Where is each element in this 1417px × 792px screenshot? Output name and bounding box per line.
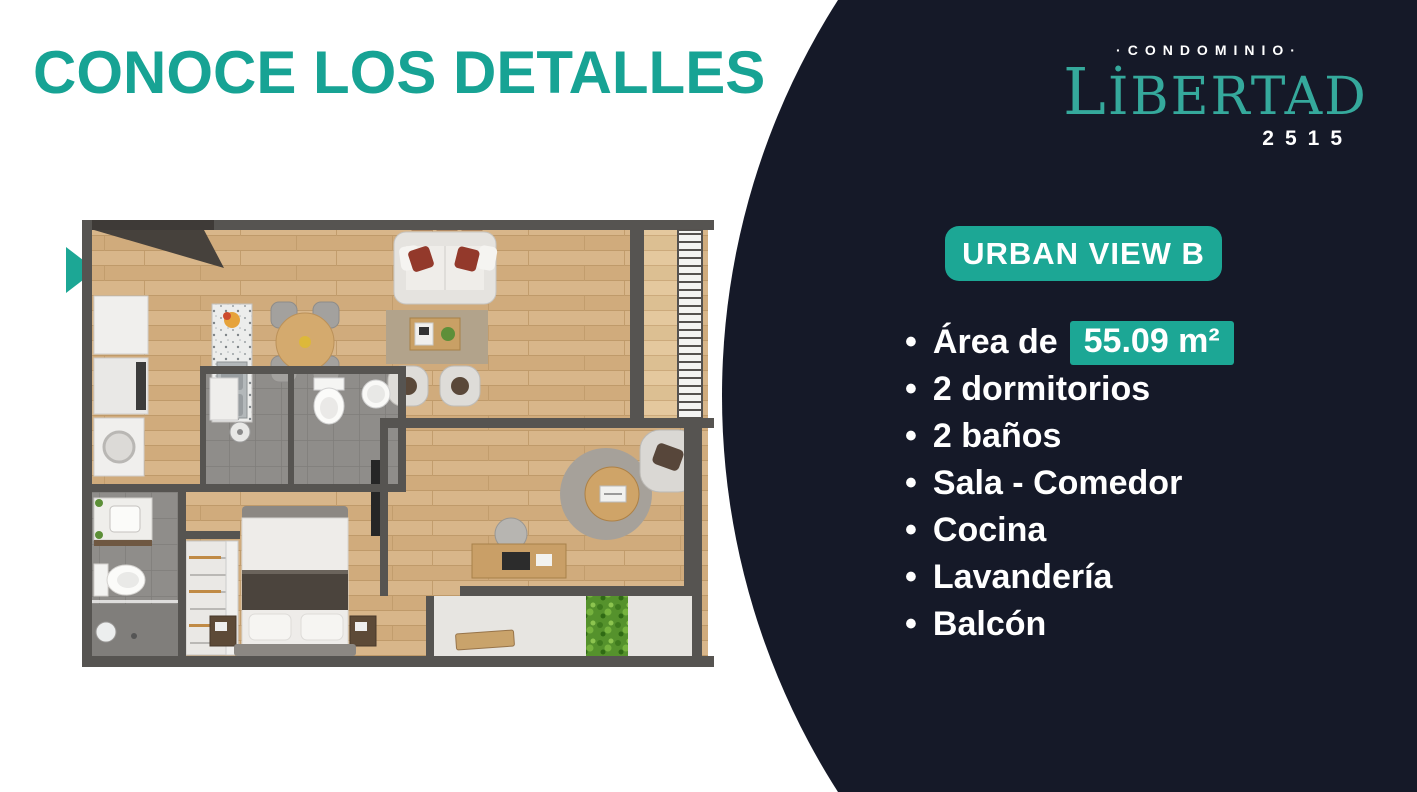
shower-head — [96, 622, 116, 642]
bullet-icon: • — [905, 417, 917, 456]
tv — [371, 460, 380, 536]
bullet-icon: • — [905, 323, 917, 362]
bullet-icon: • — [905, 558, 917, 597]
feature-bathrooms-label: 2 baños — [933, 417, 1061, 456]
bullet-icon: • — [905, 370, 917, 409]
feature-laundry: • Lavandería — [905, 554, 1234, 601]
feature-balcony: • Balcón — [905, 601, 1234, 648]
feature-bedrooms: • 2 dormitorios — [905, 366, 1234, 413]
feature-kitchen: • Cocina — [905, 507, 1234, 554]
bullet-icon: • — [905, 464, 917, 503]
feature-laundry-label: Lavandería — [933, 558, 1113, 597]
page-title: CONOCE LOS DETALLES — [33, 38, 765, 107]
bed-blanket — [242, 574, 348, 610]
balcony-floor — [644, 230, 678, 418]
feature-bedrooms-label: 2 dormitorios — [933, 370, 1150, 409]
brand-logo: ·CONDOMINIO· LİBERTAD 2515 — [1063, 42, 1355, 151]
floor-tray — [456, 630, 515, 650]
balcony-beam — [630, 220, 644, 424]
unit-badge: URBAN VIEW B — [945, 226, 1222, 281]
brand-number: 2515 — [1063, 127, 1355, 151]
bath-cabinet — [210, 378, 238, 420]
feature-bathrooms: • 2 baños — [905, 413, 1234, 460]
feature-kitchen-label: Cocina — [933, 511, 1046, 550]
feature-area-label: Área de — [933, 323, 1058, 362]
feature-area: • Área de 55.09 m² — [905, 319, 1234, 366]
feature-balcony-label: Balcón — [933, 605, 1046, 644]
balcony-railing — [678, 230, 702, 418]
headboard — [234, 644, 356, 656]
fridge — [94, 296, 148, 354]
bullet-icon: • — [905, 511, 917, 550]
pillow — [249, 614, 291, 640]
bullet-icon: • — [905, 605, 917, 644]
feature-livingroom: • Sala - Comedor — [905, 460, 1234, 507]
feature-area-value: 55.09 m² — [1070, 321, 1234, 365]
feature-livingroom-label: Sala - Comedor — [933, 464, 1182, 503]
pillow — [301, 614, 343, 640]
floor-plan-image — [74, 206, 724, 676]
shower-glass — [92, 600, 180, 603]
floor-plan-svg — [74, 206, 724, 671]
feature-list: • Área de 55.09 m² • 2 dormitorios • 2 b… — [905, 319, 1234, 648]
brand-name: LİBERTAD — [1063, 59, 1355, 127]
flyer-canvas: CONOCE LOS DETALLES ·CONDOMINIO· LİBERTA… — [0, 0, 1417, 792]
planter-greenery — [586, 596, 628, 656]
toilet — [94, 564, 108, 596]
